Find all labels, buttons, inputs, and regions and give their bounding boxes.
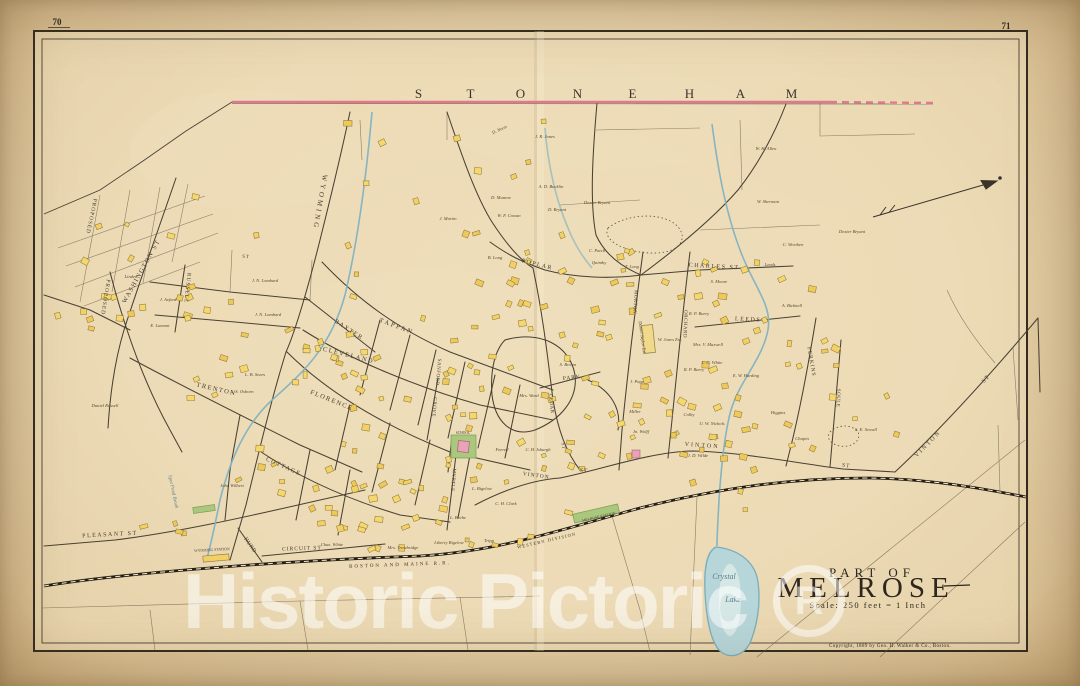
building-marker: [489, 354, 497, 359]
owner-label: Mrs. Ward: [518, 393, 539, 398]
building-marker: [808, 285, 816, 292]
building-marker: [362, 424, 371, 432]
owner-label: Chas. White: [321, 542, 343, 547]
building-marker: [541, 119, 546, 124]
owner-label: R. P. Barry: [688, 311, 710, 316]
street-label: ORCHARD: [682, 310, 688, 338]
building-marker: [626, 283, 634, 287]
building-marker: [317, 520, 325, 526]
building-marker: [344, 120, 352, 126]
owner-label: Liberty Bigelow: [433, 540, 464, 545]
building-marker: [518, 320, 526, 327]
building-marker: [303, 372, 307, 378]
owner-label: C. H. Isburgh: [525, 447, 551, 452]
owner-label: W. H. Allen: [756, 146, 778, 151]
owner-label: A. D. Bucklin: [538, 184, 564, 189]
building-marker: [626, 453, 632, 460]
building-marker: [725, 440, 733, 448]
owner-label: A. Bicknell: [781, 303, 803, 308]
building-marker: [752, 423, 758, 429]
owner-label: B. Long: [488, 255, 503, 260]
stoneham-letter: A: [736, 86, 746, 101]
map-copyright: Copyright, 1889 by Geo. H. Walker & Co.,…: [829, 644, 951, 649]
owner-label: J. N. Lombard: [255, 312, 282, 317]
building-marker: [739, 453, 748, 460]
building-marker: [404, 396, 412, 402]
street-label: ST: [242, 255, 250, 261]
building-marker: [754, 260, 760, 266]
building-marker: [641, 384, 649, 389]
owner-label: L. C. White: [701, 360, 723, 365]
building-marker: [695, 270, 701, 277]
stoneham-letter: E: [629, 86, 638, 101]
building-marker: [743, 507, 748, 511]
building-marker: [599, 320, 606, 325]
owner-label: John Wilbert: [220, 483, 244, 488]
building-marker: [694, 292, 703, 299]
owner-label: J. N. Lombard: [252, 278, 279, 283]
building-marker: [504, 479, 509, 484]
building-marker: [303, 348, 310, 353]
building-marker: [229, 299, 234, 304]
owner-label: D. Bryant: [547, 207, 567, 212]
owner-label: C. Patch: [589, 248, 606, 253]
building-marker: [528, 326, 533, 331]
building-marker: [469, 412, 477, 419]
owner-label: L. S. Osborn: [229, 389, 254, 394]
owner-label: C. Worthen: [783, 242, 804, 247]
building-marker: [472, 325, 478, 329]
street-label: ST: [842, 462, 851, 469]
map-canvas: STONEHAM WYOMINGWASHINGTON STPROPOSEDPRO…: [0, 0, 1080, 686]
building-marker: [192, 194, 200, 201]
building-marker: [559, 332, 566, 339]
building-marker: [633, 403, 641, 408]
owner-label: Higgins: [770, 410, 786, 415]
building-marker: [479, 386, 484, 392]
building-marker: [461, 413, 466, 417]
church-building: [632, 450, 640, 458]
building-marker: [720, 456, 727, 462]
building-marker: [709, 434, 717, 440]
building-marker: [853, 417, 858, 421]
building-marker: [256, 445, 265, 452]
building-marker: [341, 441, 346, 447]
owner-label: Jn. Wolff: [633, 429, 650, 434]
building-marker: [666, 410, 672, 417]
owner-label: E. Lamont: [149, 323, 170, 328]
building-marker: [279, 479, 284, 484]
building-marker: [785, 362, 790, 367]
school-label: SCHOOL: [456, 431, 470, 435]
owner-label: C. H. Clark: [495, 501, 517, 506]
owner-label: J. Axford: [160, 297, 177, 302]
owner-label: Miller: [628, 409, 641, 414]
page-numbers: 70 71: [48, 17, 1017, 32]
atlas-page: STONEHAM WYOMINGWASHINGTON STPROPOSEDPRO…: [0, 0, 1080, 686]
building-marker: [671, 432, 676, 438]
school-building: [457, 441, 469, 453]
building-marker: [678, 295, 685, 300]
owner-label: T. Long: [625, 264, 640, 269]
building-marker: [315, 345, 321, 352]
stoneham-letter: O: [516, 86, 526, 101]
page-number-right: 71: [1002, 21, 1012, 31]
owner-label: W. Sherman: [757, 199, 780, 204]
page-number-left: 70: [53, 17, 63, 27]
building-marker: [722, 383, 729, 389]
building-marker: [336, 524, 344, 532]
building-marker: [331, 510, 338, 516]
building-marker: [617, 253, 625, 260]
building-marker: [718, 293, 727, 300]
building-marker: [81, 309, 87, 315]
building-marker: [474, 369, 480, 375]
owner-label: S. E. Sewall: [855, 427, 878, 432]
street-label: ST: [580, 468, 589, 475]
building-marker: [564, 355, 570, 361]
stoneham-letter: M: [786, 86, 799, 101]
building-marker: [893, 431, 900, 437]
owner-label: Daniel Russell: [91, 403, 120, 408]
building-marker: [379, 396, 384, 401]
stoneham-letter: T: [467, 86, 476, 101]
building-marker: [375, 516, 384, 522]
building-marker: [528, 534, 535, 539]
building-marker: [821, 349, 828, 354]
owner-label: J. Page: [630, 379, 644, 384]
owner-label: Dexter Bryant: [838, 229, 866, 234]
owner-label: W. Jones Est.: [658, 337, 682, 342]
building-marker: [377, 463, 384, 469]
building-marker: [352, 448, 357, 453]
water-label: Crystal: [712, 572, 736, 581]
owner-label: Tripp: [484, 538, 495, 543]
water-label: Lake: [724, 595, 741, 604]
owner-label: L. Beebe: [449, 515, 466, 520]
owner-label: J. D. Wilde: [688, 453, 708, 458]
owner-label: Leeds: [764, 262, 776, 267]
building-marker: [116, 315, 124, 322]
building-marker: [354, 272, 359, 276]
owner-label: J. Martin: [439, 216, 457, 221]
building-marker: [361, 375, 368, 380]
building-marker: [442, 378, 449, 385]
building-marker: [187, 395, 195, 401]
building-marker: [258, 463, 266, 470]
owner-label: Farrell: [494, 447, 509, 452]
building-marker: [833, 364, 839, 368]
street-label: ST: [560, 442, 566, 449]
street-label: SOULE: [835, 389, 841, 408]
owner-label: Quimby: [592, 260, 608, 265]
building-marker: [176, 295, 183, 302]
owner-label: D. Munroe: [490, 195, 511, 200]
building-marker: [465, 538, 469, 542]
building-marker: [361, 349, 368, 355]
building-marker: [525, 159, 531, 165]
owner-label: S. Brown: [560, 362, 577, 367]
building-marker: [139, 304, 146, 311]
owner-label: Mrs. V. Maxwell: [692, 342, 724, 347]
stoneham-letter: H: [685, 86, 695, 101]
owner-label: Chapin: [795, 436, 809, 441]
owner-label: U. W. Nichols: [699, 421, 725, 426]
building-marker: [474, 167, 482, 174]
building-marker: [368, 495, 377, 503]
building-marker: [184, 315, 190, 321]
building-marker: [128, 311, 135, 318]
building-marker: [566, 440, 574, 445]
building-marker: [325, 505, 332, 510]
building-marker: [203, 307, 210, 314]
owner-label: Linden: [124, 274, 138, 279]
building-marker: [470, 477, 477, 483]
owner-label: E. W. Harding: [732, 373, 760, 378]
map-outer-border: [34, 31, 1027, 651]
building-marker: [446, 456, 452, 463]
building-marker: [450, 338, 458, 343]
owner-label: Dexter Bryant: [583, 200, 611, 205]
stoneham-letter: N: [573, 86, 583, 101]
building-marker: [452, 405, 457, 410]
building-marker: [225, 372, 233, 378]
stoneham-letter: S: [415, 86, 423, 101]
owner-label: S. Moore: [711, 279, 728, 284]
owner-label: W. F. Cowan: [497, 213, 521, 218]
map-scale-note: Scale: 250 feet = 1 Inch: [809, 600, 926, 610]
owner-label: L. B. Sears: [244, 372, 265, 377]
owner-label: Colby: [684, 412, 696, 417]
owner-label: L. Bigelow: [471, 486, 493, 491]
building-marker: [363, 181, 369, 186]
building-marker: [738, 488, 744, 494]
owner-label: Mrs. Trowbridge: [387, 545, 419, 550]
building-marker: [419, 485, 424, 490]
building-marker: [787, 340, 792, 347]
owner-label: R. P. Barry: [683, 367, 705, 372]
building-marker: [253, 232, 259, 238]
owner-label: J. R. Jones: [535, 134, 555, 139]
building-marker: [292, 380, 298, 386]
